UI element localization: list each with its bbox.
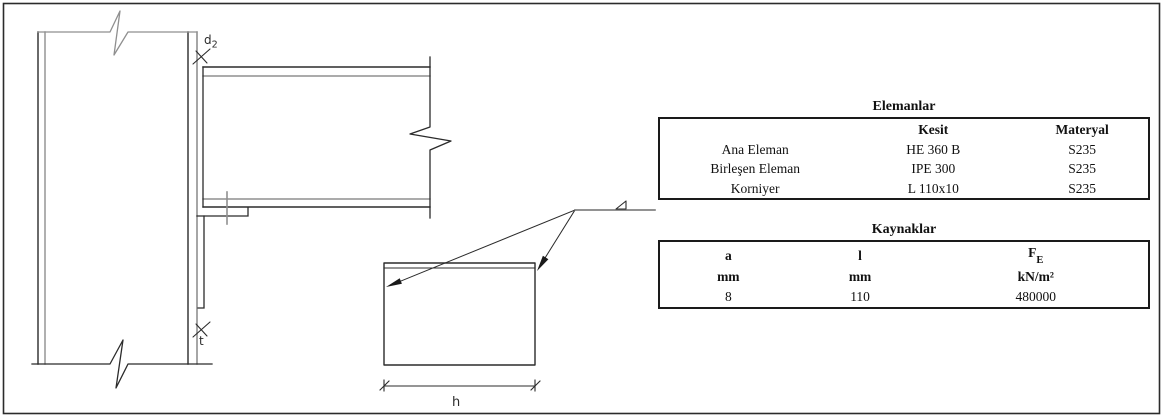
- t-dimension-label: t: [199, 335, 204, 347]
- weld-detail-view: [380, 201, 655, 391]
- elements-table-box: Kesit Materyal Ana Eleman HE 360 B S235 …: [658, 117, 1150, 200]
- weld-arrowhead-left: [386, 278, 402, 287]
- welds-units-row: mm mm kN/m²: [660, 266, 1148, 287]
- column-top-break-line: [38, 11, 197, 55]
- column-he360b: [32, 11, 212, 388]
- welds-unit-fe: kN/m²: [924, 270, 1148, 284]
- dimension-ticks: [193, 49, 210, 337]
- elements-table-title: Elemanlar: [658, 99, 1150, 117]
- elements-table: Elemanlar Kesit Materyal Ana Eleman HE 3…: [658, 99, 1150, 200]
- weld-arrowhead-right: [537, 256, 548, 271]
- element-name: Ana Eleman: [660, 143, 850, 157]
- element-name: Korniyer: [660, 182, 850, 196]
- beam-right-break-line: [410, 57, 451, 218]
- weld-value-a: 8: [660, 290, 797, 304]
- angle-vertical-leg: [198, 216, 204, 308]
- fillet-weld-symbol: [616, 201, 626, 209]
- weld-leader-line-right: [545, 210, 575, 258]
- element-section: IPE 300: [850, 162, 1016, 176]
- welds-table: Kaynaklar a l FE mm mm kN/m² 8 110 48000…: [658, 222, 1150, 309]
- welds-header-fe: FE: [924, 246, 1148, 264]
- beam-ipe300: [203, 57, 451, 218]
- column-bottom-break-line: [32, 340, 212, 388]
- weld-value-l: 110: [797, 290, 924, 304]
- welds-values-row: 8 110 480000: [660, 287, 1148, 307]
- welds-header-row: a l FE: [660, 245, 1148, 266]
- angle-horizontal-leg: [197, 208, 248, 216]
- welds-unit-a: mm: [660, 270, 797, 284]
- element-section: HE 360 B: [850, 143, 1016, 157]
- d2-dimension-label: d2: [204, 34, 218, 50]
- steel-connection-drawing: [0, 0, 1164, 418]
- elements-header-kesit: Kesit: [850, 123, 1016, 137]
- table-row: Birleşen Eleman IPE 300 S235: [660, 159, 1148, 179]
- welds-header-a: a: [660, 249, 797, 263]
- element-material: S235: [1016, 162, 1148, 176]
- welds-unit-l: mm: [797, 270, 924, 284]
- elements-header-materyal: Materyal: [1016, 123, 1148, 137]
- seat-angle-korniyer: [197, 192, 248, 308]
- weld-leader-line-left: [401, 210, 575, 281]
- h-dimension-label: h: [452, 396, 460, 409]
- elements-header-row: Kesit Materyal: [660, 120, 1148, 140]
- weld-value-fe: 480000: [924, 290, 1148, 304]
- table-row: Ana Eleman HE 360 B S235: [660, 140, 1148, 160]
- page-border: [4, 4, 1160, 414]
- welds-table-title: Kaynaklar: [658, 222, 1150, 240]
- element-material: S235: [1016, 182, 1148, 196]
- element-section: L 110x10: [850, 182, 1016, 196]
- element-name: Birleşen Eleman: [660, 162, 850, 176]
- element-material: S235: [1016, 143, 1148, 157]
- welds-table-box: a l FE mm mm kN/m² 8 110 480000: [658, 240, 1150, 309]
- table-row: Korniyer L 110x10 S235: [660, 179, 1148, 199]
- welds-header-l: l: [797, 249, 924, 263]
